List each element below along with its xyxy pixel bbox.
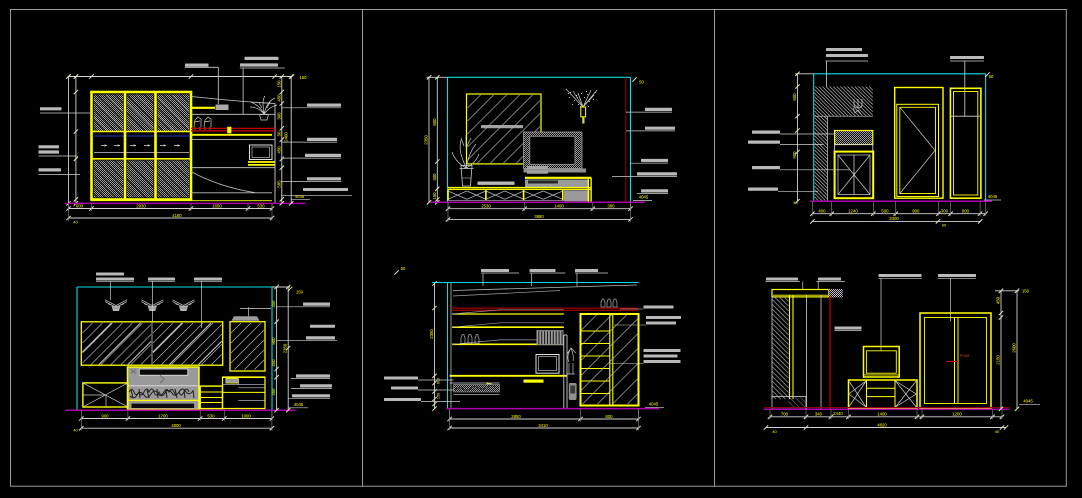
svg-text:150: 150 (437, 393, 441, 399)
svg-text:1200: 1200 (952, 412, 962, 417)
svg-text:1700: 1700 (158, 413, 168, 418)
svg-text:50: 50 (401, 266, 406, 271)
svg-text:4180: 4180 (172, 213, 182, 218)
svg-text:300: 300 (276, 112, 281, 120)
svg-text:2440: 2440 (833, 411, 843, 416)
svg-text:150: 150 (299, 75, 307, 80)
svg-text:450: 450 (276, 146, 281, 154)
svg-text:50: 50 (639, 80, 644, 85)
svg-text:3410: 3410 (538, 423, 548, 428)
svg-text:600: 600 (76, 203, 84, 208)
svg-text:2530: 2530 (481, 204, 491, 209)
svg-text:90: 90 (942, 222, 947, 227)
svg-text:530: 530 (257, 203, 265, 208)
svg-text:340: 340 (815, 412, 823, 417)
svg-text:3880: 3880 (534, 214, 544, 219)
svg-text:40: 40 (73, 220, 78, 225)
svg-text:PX88: PX88 (960, 353, 971, 358)
svg-text:40: 40 (73, 428, 78, 433)
svg-text:2930: 2930 (136, 203, 146, 208)
svg-text:600: 600 (962, 209, 970, 214)
svg-text:4045: 4045 (294, 402, 304, 407)
svg-text:4045: 4045 (988, 194, 998, 199)
svg-text:600: 600 (792, 93, 797, 101)
svg-text:4045: 4045 (1023, 399, 1033, 404)
svg-text:585: 585 (276, 180, 281, 188)
svg-text:450: 450 (271, 388, 276, 396)
svg-text:2350: 2350 (424, 135, 429, 145)
svg-text:450: 450 (276, 94, 281, 102)
svg-text:500: 500 (881, 209, 889, 214)
svg-text:450: 450 (271, 359, 276, 367)
svg-text:4820: 4820 (877, 422, 887, 427)
svg-text:1400: 1400 (877, 412, 887, 417)
svg-text:800: 800 (605, 414, 613, 419)
svg-text:3300: 3300 (889, 216, 899, 221)
svg-text:1240: 1240 (848, 209, 858, 214)
svg-text:4800: 4800 (171, 423, 181, 428)
svg-text:2350: 2350 (283, 343, 288, 353)
svg-text:450: 450 (271, 300, 276, 308)
svg-text:150: 150 (296, 290, 304, 295)
svg-text:4045: 4045 (295, 194, 305, 199)
svg-text:800: 800 (271, 337, 276, 345)
svg-text:4045: 4045 (649, 402, 659, 407)
svg-text:2150: 2150 (996, 355, 1001, 365)
svg-text:40: 40 (793, 200, 798, 205)
svg-text:4045: 4045 (639, 195, 649, 200)
svg-text:380: 380 (607, 204, 615, 209)
svg-text:40: 40 (772, 429, 777, 434)
svg-text:800: 800 (432, 118, 437, 126)
svg-text:900: 900 (912, 209, 920, 214)
svg-text:530: 530 (207, 413, 215, 418)
svg-text:300: 300 (941, 209, 949, 214)
svg-text:2850: 2850 (511, 414, 521, 419)
svg-text:1000: 1000 (241, 413, 251, 418)
svg-text:600: 600 (437, 378, 441, 384)
svg-text:150: 150 (1022, 289, 1030, 294)
svg-text:40: 40 (995, 429, 1000, 434)
svg-text:1650: 1650 (212, 203, 222, 208)
svg-text:2400: 2400 (284, 132, 289, 142)
svg-text:400: 400 (432, 173, 437, 181)
svg-text:150: 150 (276, 80, 281, 88)
svg-text:450: 450 (996, 296, 1001, 304)
svg-text:2600: 2600 (1012, 343, 1017, 353)
svg-text:50: 50 (989, 74, 994, 79)
svg-text:150: 150 (432, 192, 437, 200)
svg-text:1400: 1400 (554, 204, 564, 209)
svg-text:400: 400 (818, 209, 826, 214)
svg-text:900: 900 (792, 151, 797, 159)
svg-text:50: 50 (276, 131, 281, 136)
svg-text:700: 700 (781, 412, 789, 417)
svg-text:2350: 2350 (429, 329, 434, 339)
svg-text:900: 900 (101, 413, 109, 418)
